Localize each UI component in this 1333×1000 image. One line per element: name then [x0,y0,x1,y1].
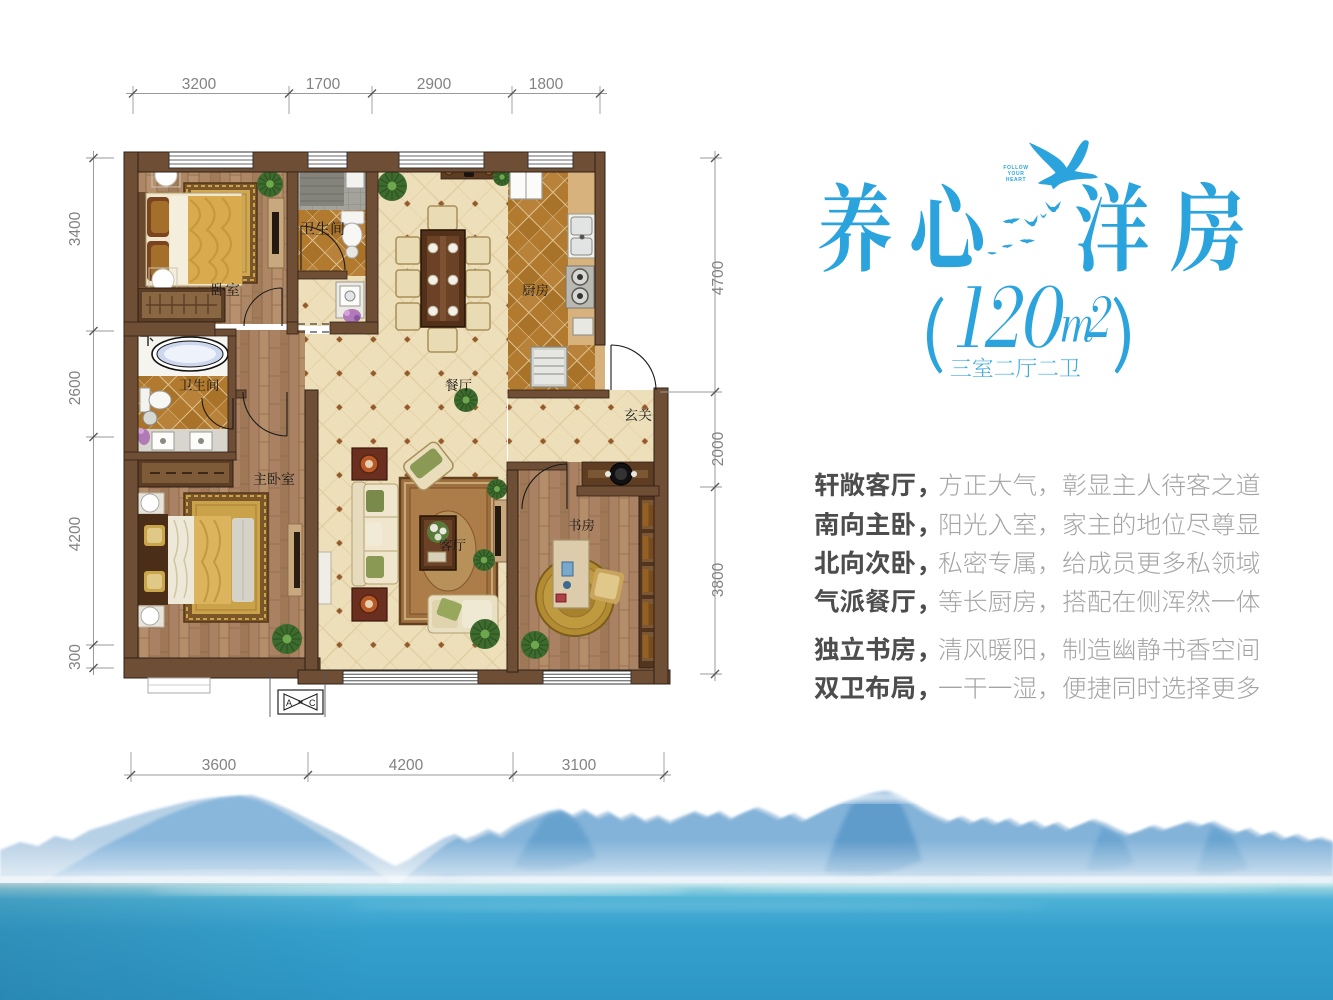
svg-text:300: 300 [67,644,84,670]
svg-text:3800: 3800 [710,562,727,597]
svg-text:2000: 2000 [710,431,727,466]
svg-text:HEART: HEART [1006,177,1026,183]
svg-text:1700: 1700 [306,76,341,93]
svg-text:3400: 3400 [67,211,84,246]
svg-text:2600: 2600 [67,370,84,405]
svg-text:3200: 3200 [182,76,217,93]
svg-text:1800: 1800 [529,76,564,93]
svg-text:4200: 4200 [389,757,424,774]
svg-text:C: C [309,698,316,708]
svg-text:A: A [286,698,292,708]
svg-text:3600: 3600 [202,757,237,774]
svg-text:3100: 3100 [562,757,597,774]
svg-text:4200: 4200 [67,516,84,551]
svg-text:4700: 4700 [710,260,727,295]
svg-text:2900: 2900 [417,76,452,93]
